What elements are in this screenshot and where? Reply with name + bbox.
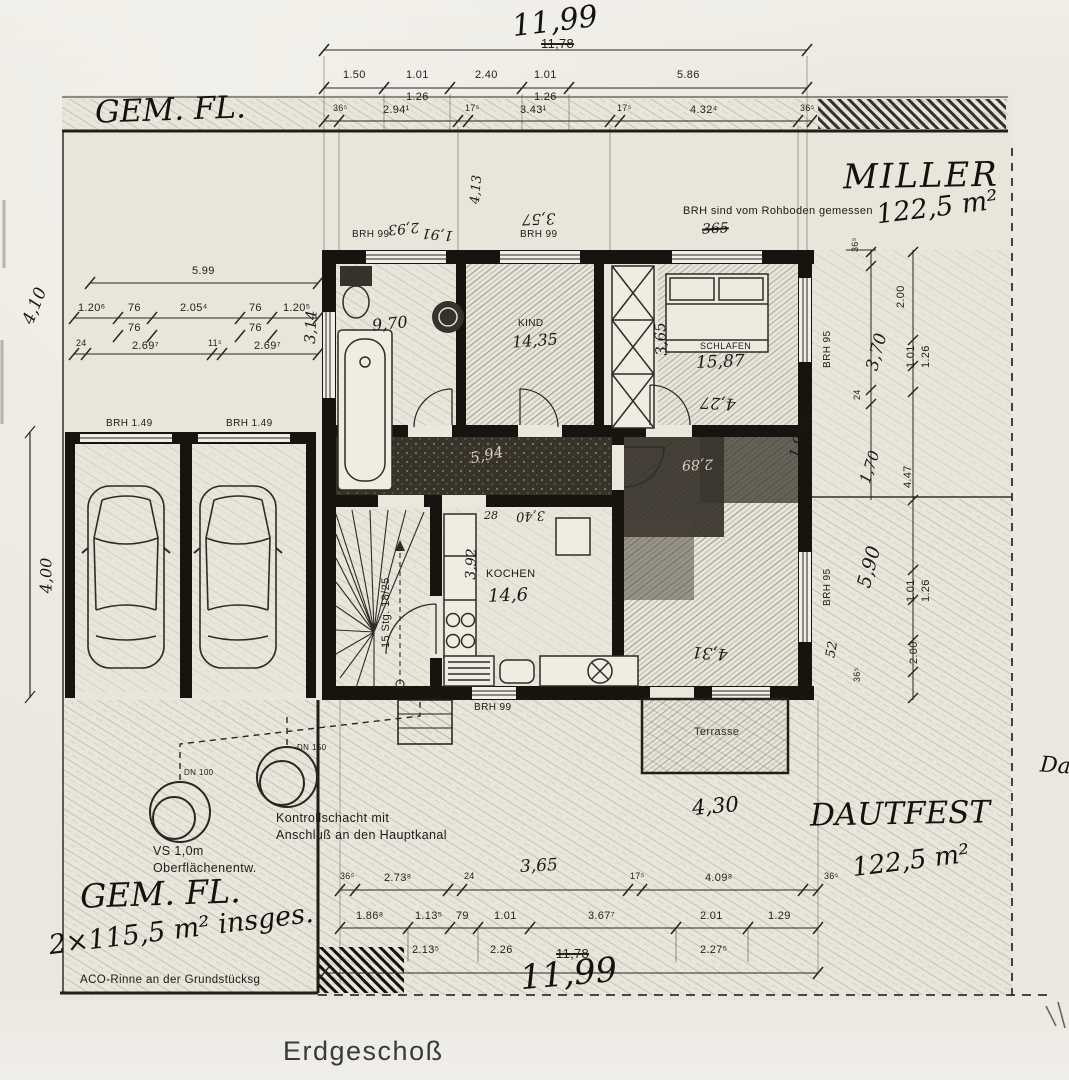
note-dn150: DN 150 [297,743,327,752]
dim: 36⁵ [850,237,860,252]
dim: 1.20⁶ [78,302,105,314]
hand-dim: 4,30 [691,792,740,820]
dim: 2.73⁸ [384,872,412,884]
dim: 1.26 [534,91,557,103]
dim: 1.86⁸ [356,910,384,922]
dim: 1.13⁵ [415,910,442,922]
owner-name-bottom: DAUTFEST [810,794,991,833]
dim: 24 [852,389,862,400]
dim: 4.47 [902,465,914,488]
sheet-title: Erdgeschoß [283,1036,444,1067]
hand-dim: 3,70 [862,331,891,373]
dim: 1.26 [920,345,932,368]
hand-dim: 5,90 [853,544,885,591]
brh-label: BRH 99 [520,229,557,240]
dim: 24 [76,338,87,348]
hand-dim-vertical: 3,92 [463,548,480,580]
dim: 1.50 [343,69,366,81]
brh-note: BRH sind vom Rohboden gemessen [683,205,873,217]
room-area-bad: 9,70 [371,312,408,335]
crossed-value: 365 [702,220,730,237]
dim: 2.00 [908,641,920,664]
note-aco: ACO-Rinne an der Grundstücksg [80,974,260,986]
hand-dim-on-dark: 5,94 [468,443,504,468]
note-vs: Oberflächenentw. [153,861,257,875]
stairs-label: 15 Stg. 18/25 [380,577,392,648]
dim: 76 [128,322,141,334]
brh-label: BRH 1.49 [106,418,153,429]
dim: 36⁵ [852,667,862,682]
dim: 2.40 [475,69,498,81]
hand-dim-upside: 3,40 [516,507,546,523]
dim: 76 [249,322,262,334]
total-width-handwritten-bottom: 11,99 [518,950,618,998]
dim: 36⁵ [824,871,839,881]
room-label-kind: KIND [518,318,544,329]
hand-dim-upside: 3,57 [522,209,556,228]
dim: 1.26 [920,579,932,602]
dim: 2.13⁵ [412,944,439,956]
hand-dim: 3,14 [301,310,321,344]
note-dn100: DN 100 [184,768,214,777]
dim: 2.26 [490,944,513,956]
total-width-printed-top: 11,78 [541,36,574,51]
brh-label: BRH 99 [474,702,511,713]
dim: 4.09⁸ [705,872,733,884]
hand-dim-upside: 4,27 [700,393,737,414]
hand-dim: 28 [484,509,498,522]
note-kontrollschacht: Kontrollschacht mit [276,811,389,825]
owner-area-bottom: 122,5 m² [851,839,972,883]
dim: 5.86 [677,69,700,81]
dim: 1.01 [905,345,917,368]
hand-dim: 1,70 [856,448,883,485]
hand-dim-vertical: 4,13 [468,174,485,204]
dim: 79 [456,910,469,922]
dim: 17⁵ [630,871,645,881]
dim: 76 [249,302,262,314]
dim: 24 [464,871,475,881]
dim: 3.67⁷ [588,910,615,922]
note-vs: VS 1,0m [153,844,204,858]
hand-dim-upside: 2,93 [387,219,419,238]
labels-layer: GEM. FL. 11,99 11,78 1.50 1.01 1.26 2.40… [0,0,1069,1080]
floor-plan-scan: GEM. FL. 11,99 11,78 1.50 1.01 1.26 2.40… [0,0,1069,1080]
dim: 2.05⁴ [180,302,208,314]
room-label-terrasse: Terrasse [694,726,739,738]
dim: 1.01 [534,69,557,81]
hand-dim: 1,90m [787,412,814,459]
dim: 1.26 [406,91,429,103]
dim: 2.27⁵ [700,944,727,956]
hand-dim-upside: 1,91 [421,225,453,244]
hand-dim-vertical: 3,65 [651,322,671,356]
room-area-schlafen: 15,87 [696,351,745,373]
dim: 1.01 [406,69,429,81]
hand-dim: 52 [823,640,841,659]
brh-label: BRH 99 [352,229,389,240]
dim: 3.43¹ [520,104,547,116]
dim: 2.01 [700,910,723,922]
dim: 36⁵ [800,103,815,113]
partial-handwriting: Dau [1039,752,1069,780]
room-area-kind: 14,35 [511,329,558,351]
brh-label: BRH 95 [822,569,833,606]
dim: 2.69⁷ [132,340,159,352]
brh-label: BRH 1.49 [226,418,273,429]
dim: 1.29 [768,910,791,922]
room-area-kochen: 14,6 [488,584,529,606]
brh-label: BRH 95 [822,331,833,368]
dim: 4.32⁴ [690,104,718,116]
dim: 2.69⁷ [254,340,281,352]
hand-dim: 4,00 [36,558,55,594]
room-label-kochen: KOCHEN [486,568,535,580]
dim: 1.01 [905,579,917,602]
dim: 2.00 [895,285,907,308]
dim: 5.99 [192,265,215,277]
hand-dim-upside: 4,31 [691,643,728,664]
plot-label-top: GEM. FL. [94,89,246,130]
dim: 76 [128,302,141,314]
note-kontrollschacht: Anschluß an den Hauptkanal [276,828,447,842]
dim: 36⁵ [340,871,355,881]
dim: 36⁵ [333,103,348,113]
hand-dim: 4,10 [19,285,52,328]
dim: 2.94¹ [383,104,410,116]
dim: 17⁵ [465,103,480,113]
dim: 1.01 [494,910,517,922]
hand-dim-on-dark: 2,89 [682,455,714,472]
dim: 17⁵ [617,103,632,113]
hand-dim: 3,65 [520,855,559,877]
room-label-schlafen: SCHLAFEN [700,341,751,351]
dim: 11⁵ [208,338,222,348]
